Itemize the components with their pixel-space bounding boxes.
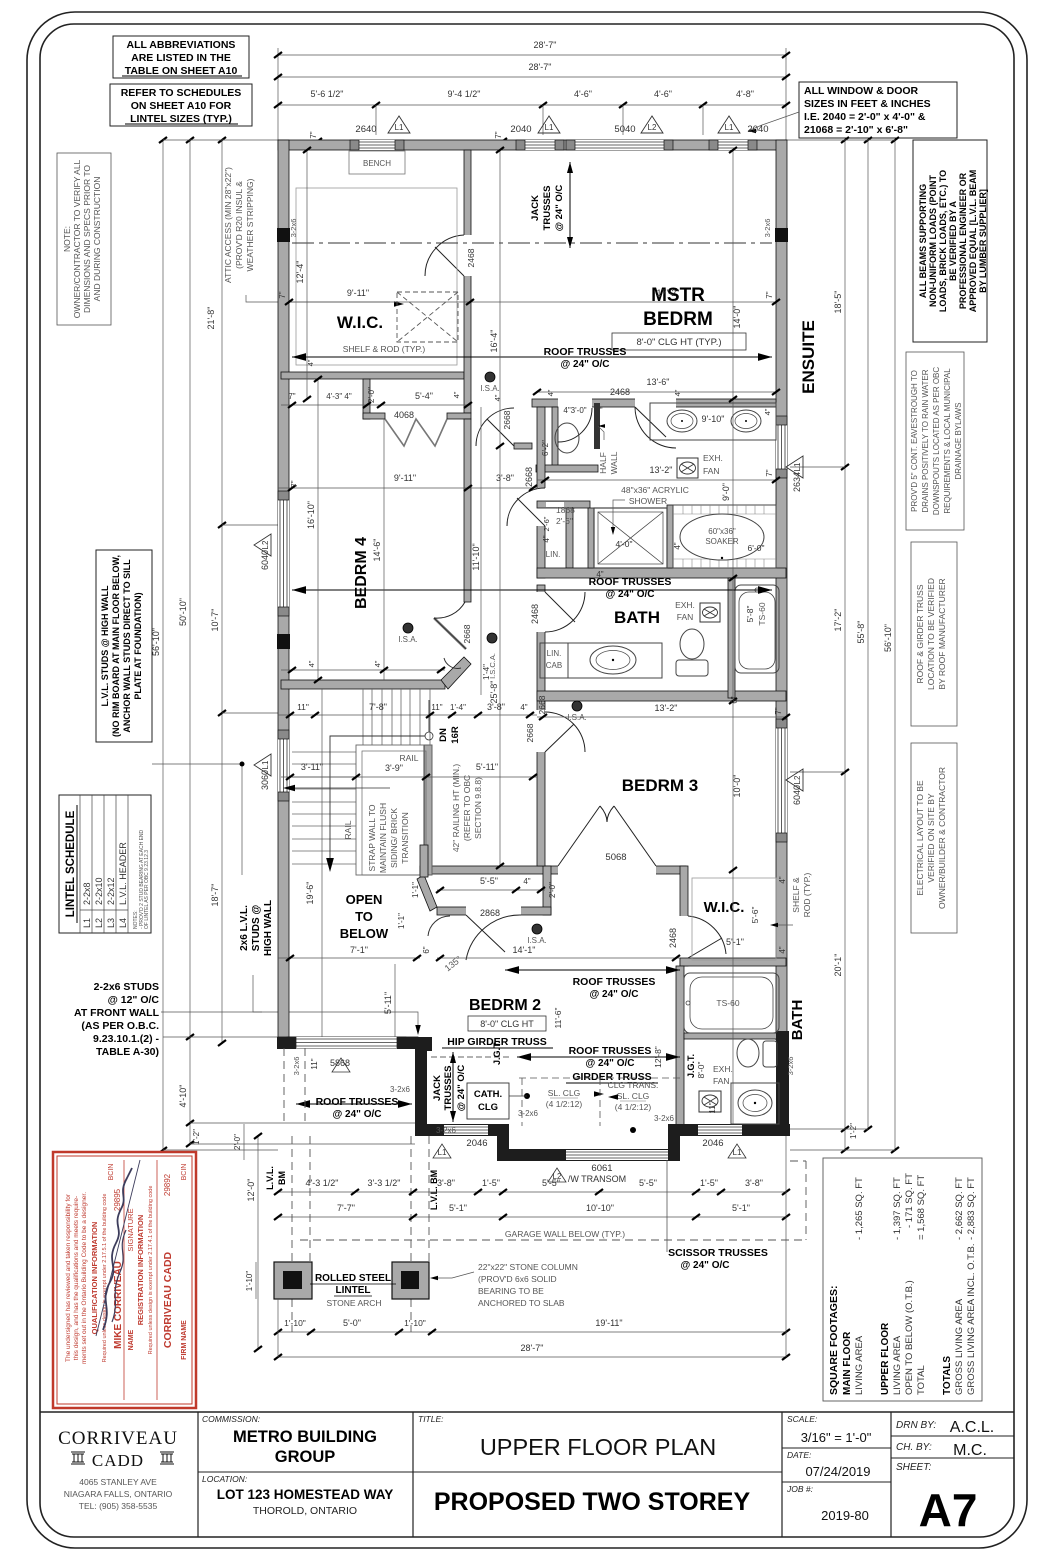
- svg-text:1868: 1868: [556, 505, 575, 515]
- svg-text:BY LUMBER SUPPLIER]: BY LUMBER SUPPLIER]: [978, 189, 988, 293]
- svg-text:LINTEL: LINTEL: [336, 1285, 371, 1296]
- svg-text:LIVING AREA: LIVING AREA: [854, 1335, 865, 1395]
- svg-text:17'-2": 17'-2": [833, 609, 843, 632]
- svg-text:BEDRM: BEDRM: [643, 309, 713, 330]
- svg-text:19'-6": 19'-6": [305, 882, 315, 905]
- svg-text:TRANSITION: TRANSITION: [400, 812, 410, 863]
- svg-text:1'-5": 1'-5": [700, 1178, 718, 1188]
- svg-text:Required unless design is exem: Required unless design is exempt under 2…: [148, 1186, 154, 1355]
- svg-text:13'-2": 13'-2": [650, 465, 673, 475]
- svg-text:2668: 2668: [525, 723, 535, 742]
- svg-text:16R: 16R: [450, 726, 461, 744]
- svg-text:OWNER/BUILDER & CONTRACTOR: OWNER/BUILDER & CONTRACTOR: [937, 767, 947, 909]
- svg-text:20'-1": 20'-1": [833, 954, 843, 977]
- svg-text:ANCHOR WALL STUDS DIRECT TO SI: ANCHOR WALL STUDS DIRECT TO SILL: [122, 559, 132, 733]
- svg-text:AT FRONT WALL: AT FRONT WALL: [74, 1007, 160, 1019]
- svg-text:14'-1": 14'-1": [513, 945, 536, 955]
- svg-text:CADD: CADD: [92, 1451, 144, 1470]
- svg-text:@ 24" O/C: @ 24" O/C: [590, 989, 639, 1000]
- svg-text:5'-6": 5'-6": [750, 907, 760, 924]
- svg-text:CORRIVEAU: CORRIVEAU: [58, 1428, 178, 1449]
- svg-text:LOADS, BRICK LOADS, ETC.) TO: LOADS, BRICK LOADS, ETC.) TO: [938, 170, 948, 312]
- svg-text:7": 7": [278, 291, 287, 298]
- svg-text:2668: 2668: [462, 624, 472, 643]
- svg-text:16'-4": 16'-4": [489, 330, 499, 353]
- svg-text:29892: 29892: [163, 1173, 172, 1196]
- svg-text:@ 24" O/C: @ 24" O/C: [561, 359, 610, 370]
- svg-text:LIVING AREA: LIVING AREA: [892, 1335, 903, 1395]
- svg-text:6040: 6040: [260, 550, 270, 570]
- svg-text:FIRM NAME: FIRM NAME: [181, 1320, 188, 1360]
- svg-text:2-2x8: 2-2x8: [82, 882, 92, 905]
- svg-text:2468: 2468: [466, 248, 476, 267]
- svg-text:BENCH: BENCH: [363, 159, 391, 168]
- svg-text:12'-0": 12'-0": [246, 1179, 256, 1202]
- svg-text:25'-8": 25'-8": [489, 681, 499, 704]
- svg-text:9'-4 1/2": 9'-4 1/2": [448, 89, 481, 99]
- svg-text:TITLE:: TITLE:: [418, 1414, 444, 1424]
- svg-text:4": 4": [778, 876, 787, 883]
- svg-text:BATH: BATH: [789, 1000, 806, 1041]
- svg-text:3-2x6: 3-2x6: [390, 1085, 411, 1094]
- svg-text:5'-4": 5'-4": [415, 391, 433, 401]
- svg-text:SIGNATURE: SIGNATURE: [126, 1208, 135, 1251]
- svg-text:4'-8": 4'-8": [736, 89, 754, 99]
- svg-text:L.V.L. BM: L.V.L. BM: [429, 1170, 439, 1210]
- svg-text:10'-10": 10'-10": [586, 1203, 614, 1213]
- svg-text:= 1,568 SQ. FT: = 1,568 SQ. FT: [916, 1175, 927, 1240]
- svg-text:OF LINTEL AS PER OBC 9.23.12.3: OF LINTEL AS PER OBC 9.23.12.3: [144, 850, 150, 929]
- svg-text:I.E. 2040 = 2'-0" x 4'-0" &: I.E. 2040 = 2'-0" x 4'-0" &: [804, 111, 926, 123]
- svg-text:OPEN TO BELOW (O.T.B.): OPEN TO BELOW (O.T.B.): [904, 1280, 915, 1395]
- svg-text:7'-1": 7'-1": [350, 945, 368, 955]
- svg-text:5'-1": 5'-1": [732, 1203, 750, 1213]
- svg-text:11": 11": [297, 702, 309, 712]
- svg-text:2668: 2668: [502, 410, 512, 429]
- svg-text:8'-0" CLG HT: 8'-0" CLG HT: [480, 1019, 534, 1029]
- svg-text:TABLE ON SHEET A10: TABLE ON SHEET A10: [125, 65, 238, 77]
- svg-text:THOROLD, ONTARIO: THOROLD, ONTARIO: [253, 1505, 357, 1517]
- svg-text:3'-8": 3'-8": [437, 1178, 455, 1188]
- svg-text:BY ROOF MANUFACTURER: BY ROOF MANUFACTURER: [937, 578, 947, 689]
- svg-text:7": 7": [494, 131, 503, 138]
- svg-text:1'-5": 1'-5": [482, 1178, 500, 1188]
- svg-text:STRAP WALL TO: STRAP WALL TO: [367, 804, 377, 871]
- svg-text:GROSS LIVING AREA INCL. O.T.B.: GROSS LIVING AREA INCL. O.T.B.: [966, 1243, 977, 1395]
- svg-text:STONE ARCH: STONE ARCH: [326, 1298, 381, 1308]
- svg-text:BM: BM: [277, 1171, 287, 1185]
- svg-text:TO: TO: [355, 909, 373, 924]
- svg-text:HIGH WALL: HIGH WALL: [263, 900, 274, 956]
- svg-text:3'-9": 3'-9": [385, 763, 403, 773]
- svg-text:1'-2": 1'-2": [192, 1129, 201, 1145]
- svg-text:OWNER/CONTRACTOR TO VERIFY ALL: OWNER/CONTRACTOR TO VERIFY ALL: [72, 159, 82, 318]
- svg-text:SCISSOR TRUSSES: SCISSOR TRUSSES: [668, 1247, 768, 1259]
- svg-text:14'-6": 14'-6": [372, 539, 382, 562]
- svg-text:5'-5": 5'-5": [639, 1178, 657, 1188]
- svg-text:5'-6 1/2": 5'-6 1/2": [311, 89, 344, 99]
- svg-text:ALL BEAMS SUPPORTING: ALL BEAMS SUPPORTING: [918, 184, 928, 298]
- svg-text:BE VERIFIED BY A: BE VERIFIED BY A: [948, 200, 958, 281]
- svg-text:TEL: (905) 358-5535: TEL: (905) 358-5535: [79, 1501, 158, 1511]
- svg-text:2'-6": 2'-6": [556, 516, 573, 526]
- svg-text:22"x22" STONE COLUMN: 22"x22" STONE COLUMN: [478, 1262, 578, 1272]
- svg-text:28'-7": 28'-7": [521, 1343, 544, 1353]
- svg-text:The undersigned has reviewed a: The undersigned has reviewed and taken r…: [65, 1193, 72, 1362]
- svg-text:/W TRANSOM: /W TRANSOM: [568, 1174, 626, 1184]
- svg-text:11'-6": 11'-6": [553, 1007, 563, 1028]
- svg-text:(4 1/2:12): (4 1/2:12): [615, 1102, 652, 1112]
- svg-text:21'-8": 21'-8": [206, 307, 216, 330]
- svg-text:GROUP: GROUP: [275, 1448, 336, 1466]
- svg-text:4'-6": 4'-6": [574, 89, 592, 99]
- svg-text:ELECTRICAL LAYOUT TO BE: ELECTRICAL LAYOUT TO BE: [915, 780, 925, 896]
- svg-text:1'-10": 1'-10": [404, 1318, 426, 1328]
- svg-text:4'-6": 4'-6": [654, 89, 672, 99]
- svg-text:5040: 5040: [614, 124, 635, 135]
- svg-text:1'-4": 1'-4": [482, 664, 491, 680]
- svg-text:L4: L4: [118, 918, 128, 928]
- svg-text:1'-2": 1'-2": [849, 1123, 858, 1139]
- svg-text:18'-7": 18'-7": [210, 884, 220, 907]
- svg-text:3-2x6: 3-2x6: [654, 1114, 675, 1123]
- svg-text:5'-0": 5'-0": [343, 1318, 361, 1328]
- svg-text:60"x36": 60"x36": [708, 527, 736, 536]
- svg-text:1'-1": 1'-1": [397, 913, 406, 929]
- svg-text:2'-0": 2'-0": [548, 882, 557, 898]
- svg-text:ON SHEET A10 FOR: ON SHEET A10 FOR: [131, 100, 232, 112]
- svg-text:WALL: WALL: [609, 451, 619, 474]
- svg-text:TOTALS: TOTALS: [942, 1356, 953, 1395]
- svg-text:2-2x6 STUDS: 2-2x6 STUDS: [94, 981, 159, 993]
- svg-text:28'-7": 28'-7": [529, 62, 552, 72]
- svg-text:4": 4": [596, 570, 603, 579]
- svg-text:3/16" = 1'-0": 3/16" = 1'-0": [801, 1430, 872, 1445]
- svg-text:LIN.: LIN.: [546, 550, 561, 559]
- svg-text:9'-11": 9'-11": [394, 473, 416, 483]
- svg-text:DN: DN: [438, 728, 449, 742]
- svg-text:L1: L1: [793, 462, 802, 471]
- svg-text:JOB #:: JOB #:: [786, 1484, 814, 1494]
- svg-text:4": 4": [763, 408, 772, 415]
- svg-text:4'-3" 4": 4'-3" 4": [326, 392, 352, 401]
- svg-text:2040: 2040: [510, 124, 531, 135]
- svg-text:ARE LISTED IN THE: ARE LISTED IN THE: [131, 52, 231, 64]
- svg-text:2668: 2668: [524, 467, 534, 487]
- svg-text:@ 12" O/C: @ 12" O/C: [108, 994, 160, 1006]
- svg-text:- 171 SQ. FT: - 171 SQ. FT: [904, 1173, 915, 1228]
- svg-text:10'-7": 10'-7": [210, 609, 220, 632]
- svg-text:MAIN FLOOR: MAIN FLOOR: [842, 1331, 853, 1395]
- svg-text:3'-3 1/2": 3'-3 1/2": [368, 1178, 401, 1188]
- svg-text:ALL WINDOW & DOOR: ALL WINDOW & DOOR: [804, 85, 919, 97]
- svg-text:@ 24" O/C: @ 24" O/C: [586, 1058, 635, 1069]
- svg-text:6": 6": [422, 946, 431, 953]
- svg-text:28'-7": 28'-7": [534, 40, 557, 50]
- svg-text:9'-11": 9'-11": [347, 288, 369, 298]
- svg-text:W.I.C.: W.I.C.: [337, 313, 383, 332]
- svg-text:REQUIREMENTS & LOCAL MUNICIPAL: REQUIREMENTS & LOCAL MUNICIPAL: [943, 368, 952, 514]
- svg-text:CLG: CLG: [478, 1102, 498, 1113]
- svg-text:ANCHORED TO SLAB: ANCHORED TO SLAB: [478, 1298, 565, 1308]
- svg-text:BEDRM 4: BEDRM 4: [353, 537, 370, 609]
- svg-text:5'-8": 5'-8": [745, 606, 755, 623]
- svg-text:ATTIC ACCESS (MIN 28"x22"): ATTIC ACCESS (MIN 28"x22"): [223, 167, 233, 283]
- svg-text:L2: L2: [553, 1172, 562, 1181]
- svg-text:EXH.: EXH.: [675, 600, 695, 610]
- svg-text:11": 11": [310, 1058, 319, 1069]
- svg-text:JACK: JACK: [530, 195, 541, 221]
- svg-text:VERIFIED ON SITE BY: VERIFIED ON SITE BY: [926, 793, 936, 883]
- svg-text:9'-0": 9'-0": [721, 483, 731, 501]
- svg-text:3-2x6: 3-2x6: [436, 1126, 457, 1135]
- svg-text:(PROV'D 6x6 SOLID: (PROV'D 6x6 SOLID: [478, 1274, 557, 1284]
- svg-text:3-2x6: 3-2x6: [786, 1057, 795, 1076]
- svg-text:17'-2": 17'-2": [657, 288, 680, 298]
- svg-text:A.C.L.: A.C.L.: [950, 1419, 994, 1436]
- svg-text:BEARING TO BE: BEARING TO BE: [478, 1286, 544, 1296]
- svg-text:REFER TO SCHEDULES: REFER TO SCHEDULES: [121, 87, 242, 99]
- svg-text:11": 11": [431, 703, 442, 712]
- svg-text:7": 7": [309, 131, 318, 138]
- svg-text:18'-5": 18'-5": [833, 291, 843, 314]
- svg-text:8'-0" CLG HT (TYP.): 8'-0" CLG HT (TYP.): [636, 337, 721, 348]
- svg-text:APPROVED EQUAL [L.V.L. BEAM: APPROVED EQUAL [L.V.L. BEAM: [968, 170, 978, 313]
- svg-text:1'-10": 1'-10": [245, 1271, 254, 1292]
- svg-text:5'-11": 5'-11": [383, 992, 393, 1014]
- svg-text:L2: L2: [648, 123, 657, 132]
- svg-text:SCALE:: SCALE:: [787, 1414, 818, 1424]
- svg-text:50'-10": 50'-10": [178, 598, 188, 626]
- svg-text:2868: 2868: [480, 908, 500, 918]
- svg-text:21068 = 2'-10" x 6'-8": 21068 = 2'-10" x 6'-8": [804, 124, 908, 136]
- svg-text:@ 24" O/C: @ 24" O/C: [554, 185, 565, 232]
- svg-text:LOCATION TO BE VERIFIED: LOCATION TO BE VERIFIED: [926, 578, 936, 690]
- svg-text:9.23.10.1.(2) -: 9.23.10.1.(2) -: [93, 1033, 159, 1045]
- svg-text:CAB: CAB: [546, 661, 562, 670]
- svg-text:SL. CLG: SL. CLG: [617, 1091, 650, 1101]
- svg-text:16'-10": 16'-10": [306, 501, 316, 529]
- svg-text:- 2,883 SQ. FT: - 2,883 SQ. FT: [966, 1177, 977, 1240]
- svg-text:FAN: FAN: [713, 1076, 730, 1086]
- svg-text:SIDING/ BRICK: SIDING/ BRICK: [389, 808, 399, 868]
- svg-text:L1: L1: [438, 1148, 447, 1157]
- svg-text:L2: L2: [261, 540, 270, 549]
- svg-text:I.S.A.: I.S.A.: [567, 713, 587, 722]
- svg-text:4": 4": [523, 877, 530, 886]
- svg-text:GARAGE WALL BELOW (TYP.): GARAGE WALL BELOW (TYP.): [505, 1229, 625, 1239]
- svg-text:MAINTAIN FLUSH: MAINTAIN FLUSH: [378, 803, 388, 873]
- svg-text:L.V.L. HEADER: L.V.L. HEADER: [118, 842, 128, 905]
- svg-text:2040: 2040: [747, 124, 768, 135]
- svg-text:TS-60: TS-60: [716, 998, 739, 1008]
- svg-text:L1: L1: [725, 123, 734, 132]
- svg-text:3'-8": 3'-8": [496, 473, 514, 483]
- svg-text:2046: 2046: [466, 1138, 487, 1149]
- svg-text:6061: 6061: [591, 1163, 612, 1174]
- svg-text:4'-0": 4'-0": [616, 539, 633, 549]
- svg-text:6": 6": [730, 696, 739, 703]
- svg-text:SOAKER: SOAKER: [705, 537, 739, 546]
- svg-text:4"3'-0": 4"3'-0": [563, 406, 586, 415]
- svg-text:SHOWER: SHOWER: [629, 496, 667, 506]
- svg-text:SIZES IN FEET & INCHES: SIZES IN FEET & INCHES: [804, 98, 931, 110]
- svg-text:5'-1": 5'-1": [726, 937, 744, 947]
- svg-text:3-2x6: 3-2x6: [518, 1109, 539, 1118]
- svg-text:RAIL: RAIL: [343, 820, 353, 839]
- svg-text:2'-0": 2'-0": [367, 387, 376, 403]
- svg-text:13'-2": 13'-2": [655, 703, 678, 713]
- svg-text:ENSUITE: ENSUITE: [799, 320, 818, 394]
- svg-text:5068: 5068: [605, 852, 626, 863]
- svg-text:METRO BUILDING: METRO BUILDING: [233, 1428, 377, 1446]
- svg-text:RAIL: RAIL: [400, 753, 419, 763]
- svg-text:ROD (TYP.): ROD (TYP.): [802, 872, 812, 917]
- svg-text:JACK: JACK: [432, 1075, 443, 1101]
- svg-text:56'-10": 56'-10": [883, 624, 893, 652]
- svg-text:CORRIVEAU CADD: CORRIVEAU CADD: [162, 1251, 174, 1348]
- svg-text:4": 4": [595, 406, 602, 415]
- svg-text:4": 4": [673, 389, 682, 396]
- svg-text:UPPER FLOOR PLAN: UPPER FLOOR PLAN: [480, 1434, 716, 1460]
- svg-text:2640: 2640: [355, 124, 376, 135]
- svg-text:@ 24" O/C: @ 24" O/C: [456, 1065, 467, 1112]
- svg-text:BELOW: BELOW: [340, 926, 389, 941]
- svg-text:DRN BY:: DRN BY:: [896, 1420, 936, 1431]
- svg-text:3-2x6: 3-2x6: [763, 219, 772, 238]
- svg-text:ALL ABBREVIATIONS: ALL ABBREVIATIONS: [127, 39, 236, 51]
- svg-text:2-2x10: 2-2x10: [94, 877, 104, 905]
- svg-text:I.S.A.: I.S.A.: [398, 635, 418, 644]
- svg-text:J.G.T.: J.G.T.: [492, 1041, 502, 1065]
- svg-text:(REFER TO OBC: (REFER TO OBC: [462, 775, 472, 841]
- svg-text:3-2x6: 3-2x6: [289, 219, 298, 238]
- svg-text:4": 4": [306, 359, 315, 366]
- svg-text:@ 24" O/C: @ 24" O/C: [606, 589, 655, 600]
- svg-text:4065 STANLEY AVE: 4065 STANLEY AVE: [79, 1477, 157, 1487]
- svg-text:LOCATION:: LOCATION:: [202, 1474, 248, 1484]
- svg-text:TABLE A-30): TABLE A-30): [96, 1046, 159, 1058]
- svg-text:4": 4": [493, 394, 502, 401]
- svg-text:L1: L1: [261, 760, 270, 769]
- svg-text:48"x36" ACRYLIC: 48"x36" ACRYLIC: [621, 485, 689, 495]
- svg-text:14'-0": 14'-0": [732, 306, 742, 329]
- svg-text:11": 11": [708, 1102, 717, 1113]
- svg-text:(AS PER O.B.C.: (AS PER O.B.C.: [81, 1020, 159, 1032]
- svg-text:DRAINAGE BYLAWS: DRAINAGE BYLAWS: [954, 402, 963, 479]
- svg-text:2'-6": 2'-6": [542, 516, 551, 531]
- svg-text:(PROV'D R20 INSUL &: (PROV'D R20 INSUL &: [234, 181, 244, 269]
- svg-text:W.I.C.: W.I.C.: [704, 899, 745, 916]
- svg-text:PLATE AT FOUNDATION): PLATE AT FOUNDATION): [133, 592, 143, 699]
- svg-text:7'-7": 7'-7": [337, 1203, 355, 1213]
- svg-text:L.V.L. STUDS @ HIGH WALL: L.V.L. STUDS @ HIGH WALL: [100, 585, 110, 706]
- svg-text:SQUARE FOOTAGES:: SQUARE FOOTAGES:: [828, 1286, 840, 1395]
- svg-text:NOTE:: NOTE:: [62, 226, 72, 252]
- svg-text:7'-8": 7'-8": [369, 702, 387, 712]
- svg-text:CLG TRANS.: CLG TRANS.: [608, 1080, 659, 1090]
- svg-text:TRUSSES: TRUSSES: [443, 1066, 454, 1111]
- svg-text:4": 4": [520, 703, 527, 712]
- svg-text:5'-11": 5'-11": [476, 762, 498, 772]
- svg-text:L1: L1: [545, 123, 554, 132]
- svg-text:SHELF &: SHELF &: [791, 877, 801, 913]
- svg-text:BCIN: BCIN: [181, 1164, 188, 1181]
- svg-text:I.S.A.: I.S.A.: [480, 384, 500, 393]
- svg-text:4068: 4068: [394, 410, 414, 420]
- svg-text:4": 4": [452, 391, 461, 398]
- svg-text:2'-0": 2'-0": [233, 1134, 242, 1150]
- svg-text:4": 4": [373, 660, 382, 667]
- svg-text:Required unless design is exem: Required unless design is exempt under 2…: [102, 1194, 108, 1363]
- svg-text:BEDRM 2: BEDRM 2: [469, 997, 541, 1014]
- svg-text:19'-11": 19'-11": [595, 1318, 622, 1328]
- svg-text:7": 7": [765, 469, 774, 476]
- svg-text:BATH: BATH: [614, 608, 660, 627]
- svg-text:2x6 L.V.L.: 2x6 L.V.L.: [239, 905, 250, 951]
- svg-text:1'-10": 1'-10": [284, 1318, 306, 1328]
- svg-text:- 2,662 SQ. FT: - 2,662 SQ. FT: [954, 1177, 965, 1240]
- svg-text:7": 7": [774, 707, 783, 714]
- svg-text:5'-5": 5'-5": [480, 876, 498, 886]
- svg-text:ROOF TRUSSES: ROOF TRUSSES: [544, 346, 627, 358]
- svg-text:DOWNSPOUTS LOCATED AS PER OBC: DOWNSPOUTS LOCATED AS PER OBC: [932, 367, 941, 516]
- svg-text:6040: 6040: [792, 785, 802, 805]
- svg-text:11'-10": 11'-10": [471, 543, 481, 570]
- svg-text:4": 4": [673, 542, 682, 549]
- svg-text:(4 1/2:12): (4 1/2:12): [546, 1099, 583, 1109]
- svg-text:@ 24" O/C: @ 24" O/C: [333, 1109, 382, 1120]
- svg-text:TRUSSES: TRUSSES: [542, 186, 553, 231]
- svg-text:UPPER FLOOR: UPPER FLOOR: [880, 1322, 891, 1395]
- svg-text:ments set out in the Ontario B: ments set out in the Ontario Building Co…: [81, 1192, 88, 1364]
- svg-text:L.V.L.: L.V.L.: [265, 1166, 275, 1190]
- svg-text:07/24/2019: 07/24/2019: [805, 1464, 870, 1479]
- svg-text:TS-60: TS-60: [757, 602, 767, 625]
- svg-text:2468: 2468: [530, 604, 540, 624]
- svg-text:DIMENSIONS AND SPECS PRIOR TO: DIMENSIONS AND SPECS PRIOR TO: [82, 165, 92, 313]
- svg-text:2468: 2468: [668, 928, 678, 948]
- svg-text:2019-80: 2019-80: [821, 1508, 869, 1523]
- svg-text:6'-0": 6'-0": [748, 543, 765, 553]
- svg-text:STUDS @: STUDS @: [251, 905, 262, 952]
- svg-text:3060: 3060: [260, 770, 270, 790]
- svg-text:7": 7": [290, 480, 299, 487]
- svg-text:PROFESSIONAL ENGINEER OR: PROFESSIONAL ENGINEER OR: [958, 172, 968, 309]
- svg-text:2468: 2468: [610, 387, 630, 397]
- svg-text:ROOF & GIRDER TRUSS: ROOF & GIRDER TRUSS: [915, 584, 925, 683]
- svg-text:4'-3 1/2": 4'-3 1/2": [306, 1178, 339, 1188]
- svg-text:SHELF & ROD (TYP.): SHELF & ROD (TYP.): [343, 344, 426, 354]
- svg-text:- 1,265 SQ. FT: - 1,265 SQ. FT: [854, 1177, 865, 1240]
- svg-text:2668: 2668: [537, 695, 547, 714]
- svg-text:FAN: FAN: [677, 612, 694, 622]
- svg-text:SL. CLG: SL. CLG: [548, 1088, 581, 1098]
- svg-text:M.C.: M.C.: [953, 1442, 987, 1459]
- svg-text:L1: L1: [395, 123, 404, 132]
- svg-text:3'-8": 3'-8": [487, 702, 505, 712]
- svg-text:HALF: HALF: [598, 452, 608, 474]
- svg-text:2634: 2634: [792, 472, 802, 492]
- svg-text:12'-8": 12'-8": [653, 1046, 663, 1068]
- svg-text:ROOF TRUSSES: ROOF TRUSSES: [573, 976, 656, 988]
- svg-text:8'-0": 8'-0": [696, 1062, 706, 1079]
- svg-text:NAME: NAME: [128, 1329, 135, 1350]
- svg-text:L2: L2: [793, 775, 802, 784]
- svg-text:5'-1": 5'-1": [449, 1203, 467, 1213]
- svg-text:REGISTRATION INFORMATION: REGISTRATION INFORMATION: [136, 1215, 145, 1326]
- svg-text:SECTION 9.8.8): SECTION 9.8.8): [473, 777, 483, 839]
